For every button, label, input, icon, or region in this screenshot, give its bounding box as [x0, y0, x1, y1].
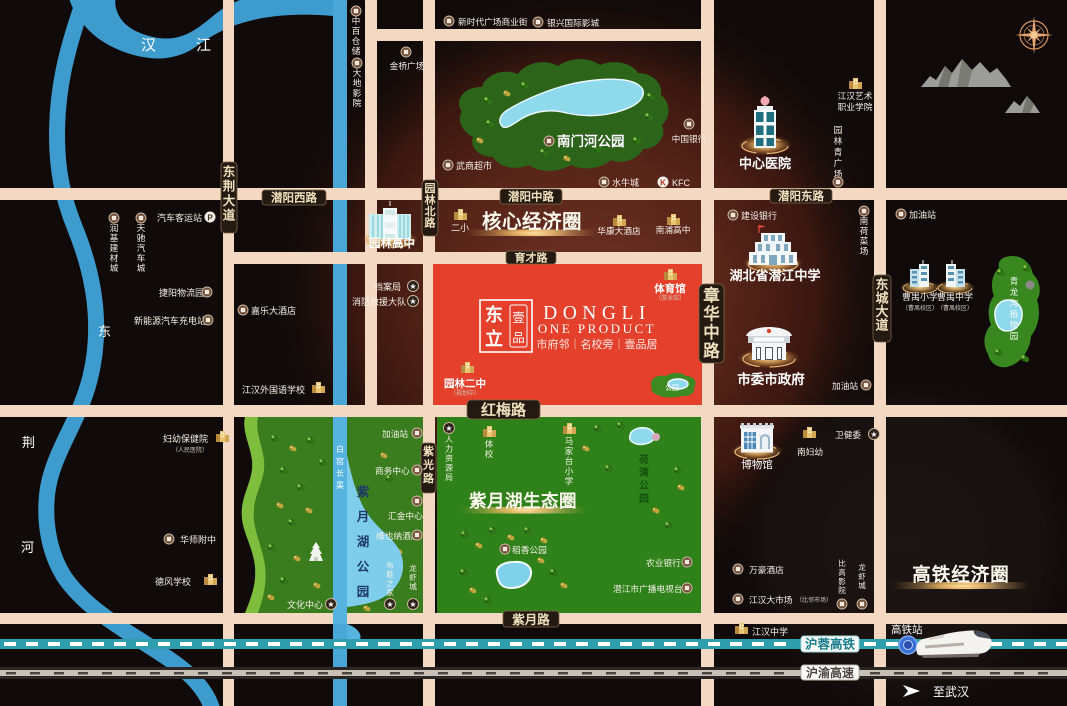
svg-text:体校: 体校	[485, 439, 494, 459]
svg-text:中国银行: 中国银行	[672, 133, 707, 144]
svg-text:江: 江	[196, 37, 211, 54]
svg-text:新时代广场商业街: 新时代广场商业街	[458, 16, 528, 27]
svg-text:曹禺中学: 曹禺中学	[937, 291, 973, 302]
svg-text:河: 河	[21, 540, 34, 555]
svg-text:湖北省潜江中学: 湖北省潜江中学	[729, 268, 820, 283]
svg-text:汉: 汉	[141, 37, 162, 54]
svg-text:商务中心: 商务中心	[375, 465, 410, 476]
svg-text:龙虾城: 龙虾城	[858, 562, 866, 590]
svg-text:华康大酒店: 华康大酒店	[597, 225, 641, 236]
svg-text:潜阳西路: 潜阳西路	[271, 191, 317, 205]
svg-text:江汉外国语学校: 江汉外国语学校	[242, 384, 305, 395]
svg-text:江汉大市场: 江汉大市场	[749, 594, 793, 605]
svg-text:华师附中: 华师附中	[180, 534, 216, 545]
svg-text:潜江市广播电视台: 潜江市广播电视台	[613, 583, 683, 594]
svg-text:江汉中学: 江汉中学	[752, 626, 788, 637]
svg-text:核心经济圈: 核心经济圈	[482, 210, 582, 233]
svg-text:新能源汽车充电站: 新能源汽车充电站	[134, 315, 206, 326]
svg-text:高铁站: 高铁站	[891, 623, 923, 636]
svg-text:K: K	[660, 179, 666, 188]
svg-text:（曹禺校区）: （曹禺校区）	[902, 304, 938, 312]
svg-text:P: P	[207, 214, 213, 223]
svg-text:（比邻市场）: （比邻市场）	[796, 596, 832, 604]
svg-text:品: 品	[512, 331, 525, 345]
svg-text:水牛城: 水牛城	[612, 177, 639, 188]
svg-text:沪渝高速: 沪渝高速	[806, 665, 854, 680]
svg-text:中百仓储: 中百仓储	[352, 15, 361, 56]
svg-text:嘉乐大酒店: 嘉乐大酒店	[251, 305, 296, 316]
svg-text:汇金中心: 汇金中心	[388, 510, 423, 521]
svg-text:园林高中: 园林高中	[369, 236, 415, 250]
svg-text:南妇幼: 南妇幼	[797, 446, 823, 457]
svg-text:档案局: 档案局	[374, 281, 401, 292]
svg-text:高铁经济圈: 高铁经济圈	[912, 564, 1010, 585]
svg-text:万豪酒店: 万豪酒店	[749, 564, 784, 575]
svg-text:卫健委: 卫健委	[835, 429, 861, 440]
svg-text:东荆大道: 东荆大道	[223, 164, 236, 223]
svg-text:公园: 公园	[665, 384, 679, 392]
svg-text:沪蓉高铁: 沪蓉高铁	[805, 637, 856, 652]
svg-text:捷阳物流园: 捷阳物流园	[159, 287, 204, 298]
svg-text:青龙沟植物园: 青龙沟植物园	[1010, 276, 1019, 341]
svg-text:（游泳馆）: （游泳馆）	[655, 294, 685, 302]
svg-text:红梅路: 红梅路	[481, 401, 527, 419]
svg-text:文化中心: 文化中心	[287, 599, 323, 610]
svg-text:加油站: 加油站	[909, 209, 936, 220]
svg-text:布鞋之家: 布鞋之家	[386, 560, 394, 597]
svg-text:加油站: 加油站	[382, 428, 408, 439]
svg-text:紫月路: 紫月路	[512, 612, 550, 627]
svg-text:建设银行: 建设银行	[741, 210, 777, 221]
svg-text:荆: 荆	[22, 435, 35, 450]
svg-text:紫月湖生态圈: 紫月湖生态圈	[469, 491, 577, 511]
svg-text:体育馆: 体育馆	[654, 282, 686, 295]
svg-text:紫光路: 紫光路	[422, 444, 435, 485]
svg-text:东城大道: 东城大道	[875, 277, 888, 333]
svg-text:汽车客运站: 汽车客运站	[157, 212, 202, 223]
svg-text:二小: 二小	[451, 223, 469, 233]
svg-text:武商超市: 武商超市	[456, 160, 492, 171]
svg-text:章华中路: 章华中路	[703, 285, 720, 361]
svg-text:潜阳中路: 潜阳中路	[508, 190, 554, 204]
svg-text:人力资源局: 人力资源局	[445, 435, 453, 482]
svg-text:金桥广场: 金桥广场	[390, 60, 425, 71]
svg-text:润基建材城: 润基建材城	[110, 222, 119, 273]
svg-text:市委市政府: 市委市政府	[737, 371, 805, 387]
svg-text:园林青广场: 园林青广场	[834, 125, 843, 179]
svg-text:马家台小学: 马家台小学	[565, 436, 574, 486]
svg-text:市府邻｜名校旁｜壹品居: 市府邻｜名校旁｜壹品居	[537, 337, 658, 351]
svg-text:农业银行: 农业银行	[646, 557, 681, 568]
svg-text:大地影院: 大地影院	[353, 67, 362, 108]
svg-text:中心医院: 中心医院	[739, 156, 791, 171]
svg-text:KFC: KFC	[672, 178, 691, 188]
svg-text:园林二中: 园林二中	[444, 377, 486, 390]
svg-text:消防救援大队: 消防救援大队	[352, 296, 406, 307]
svg-text:天驰汽车城: 天驰汽车城	[137, 223, 146, 273]
svg-text:ONE PRODUCT: ONE PRODUCT	[538, 321, 656, 336]
svg-text:银兴国际影城: 银兴国际影城	[547, 17, 599, 28]
svg-text:壹: 壹	[512, 311, 525, 325]
svg-text:南荷菜场: 南荷菜场	[860, 215, 869, 256]
svg-text:曹禺小学: 曹禺小学	[902, 291, 938, 302]
svg-text:德风学校: 德风学校	[155, 576, 191, 587]
svg-text:比高影院: 比高影院	[838, 558, 846, 595]
svg-text:潜阳东路: 潜阳东路	[778, 189, 824, 203]
svg-text:立: 立	[485, 328, 503, 349]
svg-text:至武汉: 至武汉	[933, 685, 969, 699]
svg-text:博物馆: 博物馆	[741, 458, 773, 471]
svg-text:园林北路: 园林北路	[425, 182, 437, 230]
svg-text:龙虾城: 龙虾城	[409, 563, 417, 591]
svg-text:妇幼保健院: 妇幼保健院	[163, 433, 208, 444]
svg-text:育才路: 育才路	[515, 251, 549, 265]
svg-text:南浦高中: 南浦高中	[656, 224, 691, 235]
svg-text:稻香公园: 稻香公园	[512, 545, 547, 555]
svg-text:（规划中）: （规划中）	[450, 389, 480, 397]
svg-text:加油站: 加油站	[832, 380, 858, 391]
svg-text:东: 东	[98, 324, 111, 339]
svg-text:（人民医院）: （人民医院）	[172, 446, 208, 454]
svg-text:南门河公园: 南门河公园	[557, 133, 625, 149]
svg-text:东: 东	[485, 304, 503, 325]
svg-text:（曹禺校区）: （曹禺校区）	[937, 304, 973, 312]
